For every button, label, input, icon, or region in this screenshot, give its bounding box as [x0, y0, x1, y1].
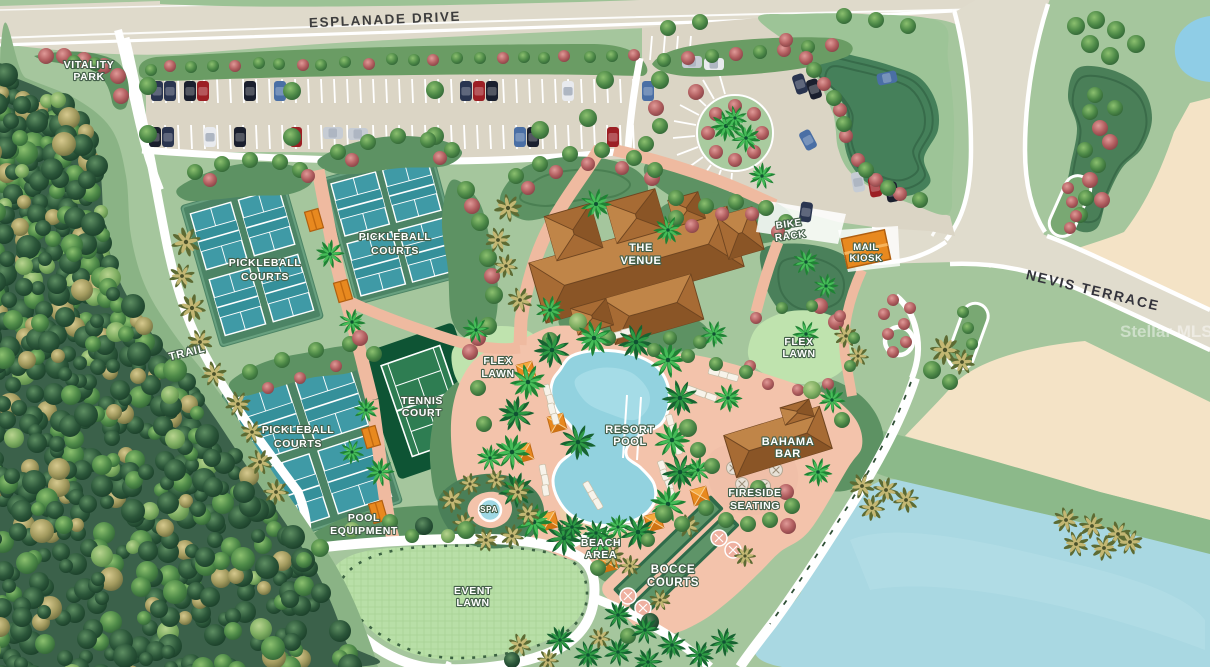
- svg-text:RESORT: RESORT: [605, 424, 654, 436]
- svg-text:KIOSK: KIOSK: [849, 253, 882, 264]
- svg-text:PICKLEBALL: PICKLEBALL: [359, 231, 432, 243]
- svg-text:FLEX: FLEX: [483, 355, 512, 367]
- svg-text:AREA: AREA: [585, 549, 617, 561]
- svg-text:COURTS: COURTS: [647, 577, 699, 589]
- svg-text:LAWN: LAWN: [782, 348, 815, 360]
- svg-text:MAIL: MAIL: [853, 242, 879, 253]
- svg-text:COURTS: COURTS: [241, 271, 289, 283]
- svg-text:BAHAMA: BAHAMA: [762, 436, 814, 448]
- svg-text:COURT: COURT: [402, 407, 442, 419]
- svg-text:THE: THE: [629, 242, 653, 254]
- svg-text:TENNIS: TENNIS: [401, 395, 443, 407]
- svg-text:COURTS: COURTS: [274, 438, 322, 450]
- svg-text:SEATING: SEATING: [730, 500, 780, 512]
- svg-text:SPA: SPA: [480, 505, 498, 514]
- svg-text:BAR: BAR: [775, 448, 801, 460]
- svg-text:EVENT: EVENT: [454, 585, 492, 597]
- svg-text:LAWN: LAWN: [456, 597, 489, 609]
- svg-text:POOL: POOL: [613, 436, 647, 448]
- svg-text:PICKLEBALL: PICKLEBALL: [262, 424, 335, 436]
- svg-text:Stellar MLS: Stellar MLS: [1120, 322, 1210, 341]
- svg-text:LAWN: LAWN: [481, 368, 514, 380]
- svg-text:PARK: PARK: [73, 71, 104, 83]
- svg-text:COURTS: COURTS: [371, 245, 419, 257]
- svg-text:POOL: POOL: [348, 512, 380, 524]
- svg-text:FIRESIDE: FIRESIDE: [728, 487, 781, 499]
- svg-text:PICKLEBALL: PICKLEBALL: [229, 257, 302, 269]
- svg-text:EQUIPMENT: EQUIPMENT: [330, 525, 398, 537]
- svg-text:FLEX: FLEX: [784, 336, 813, 348]
- svg-text:BOCCE: BOCCE: [651, 564, 696, 576]
- svg-text:VENUE: VENUE: [621, 255, 662, 267]
- svg-text:VITALITY: VITALITY: [64, 59, 115, 71]
- svg-text:BEACH: BEACH: [581, 537, 621, 549]
